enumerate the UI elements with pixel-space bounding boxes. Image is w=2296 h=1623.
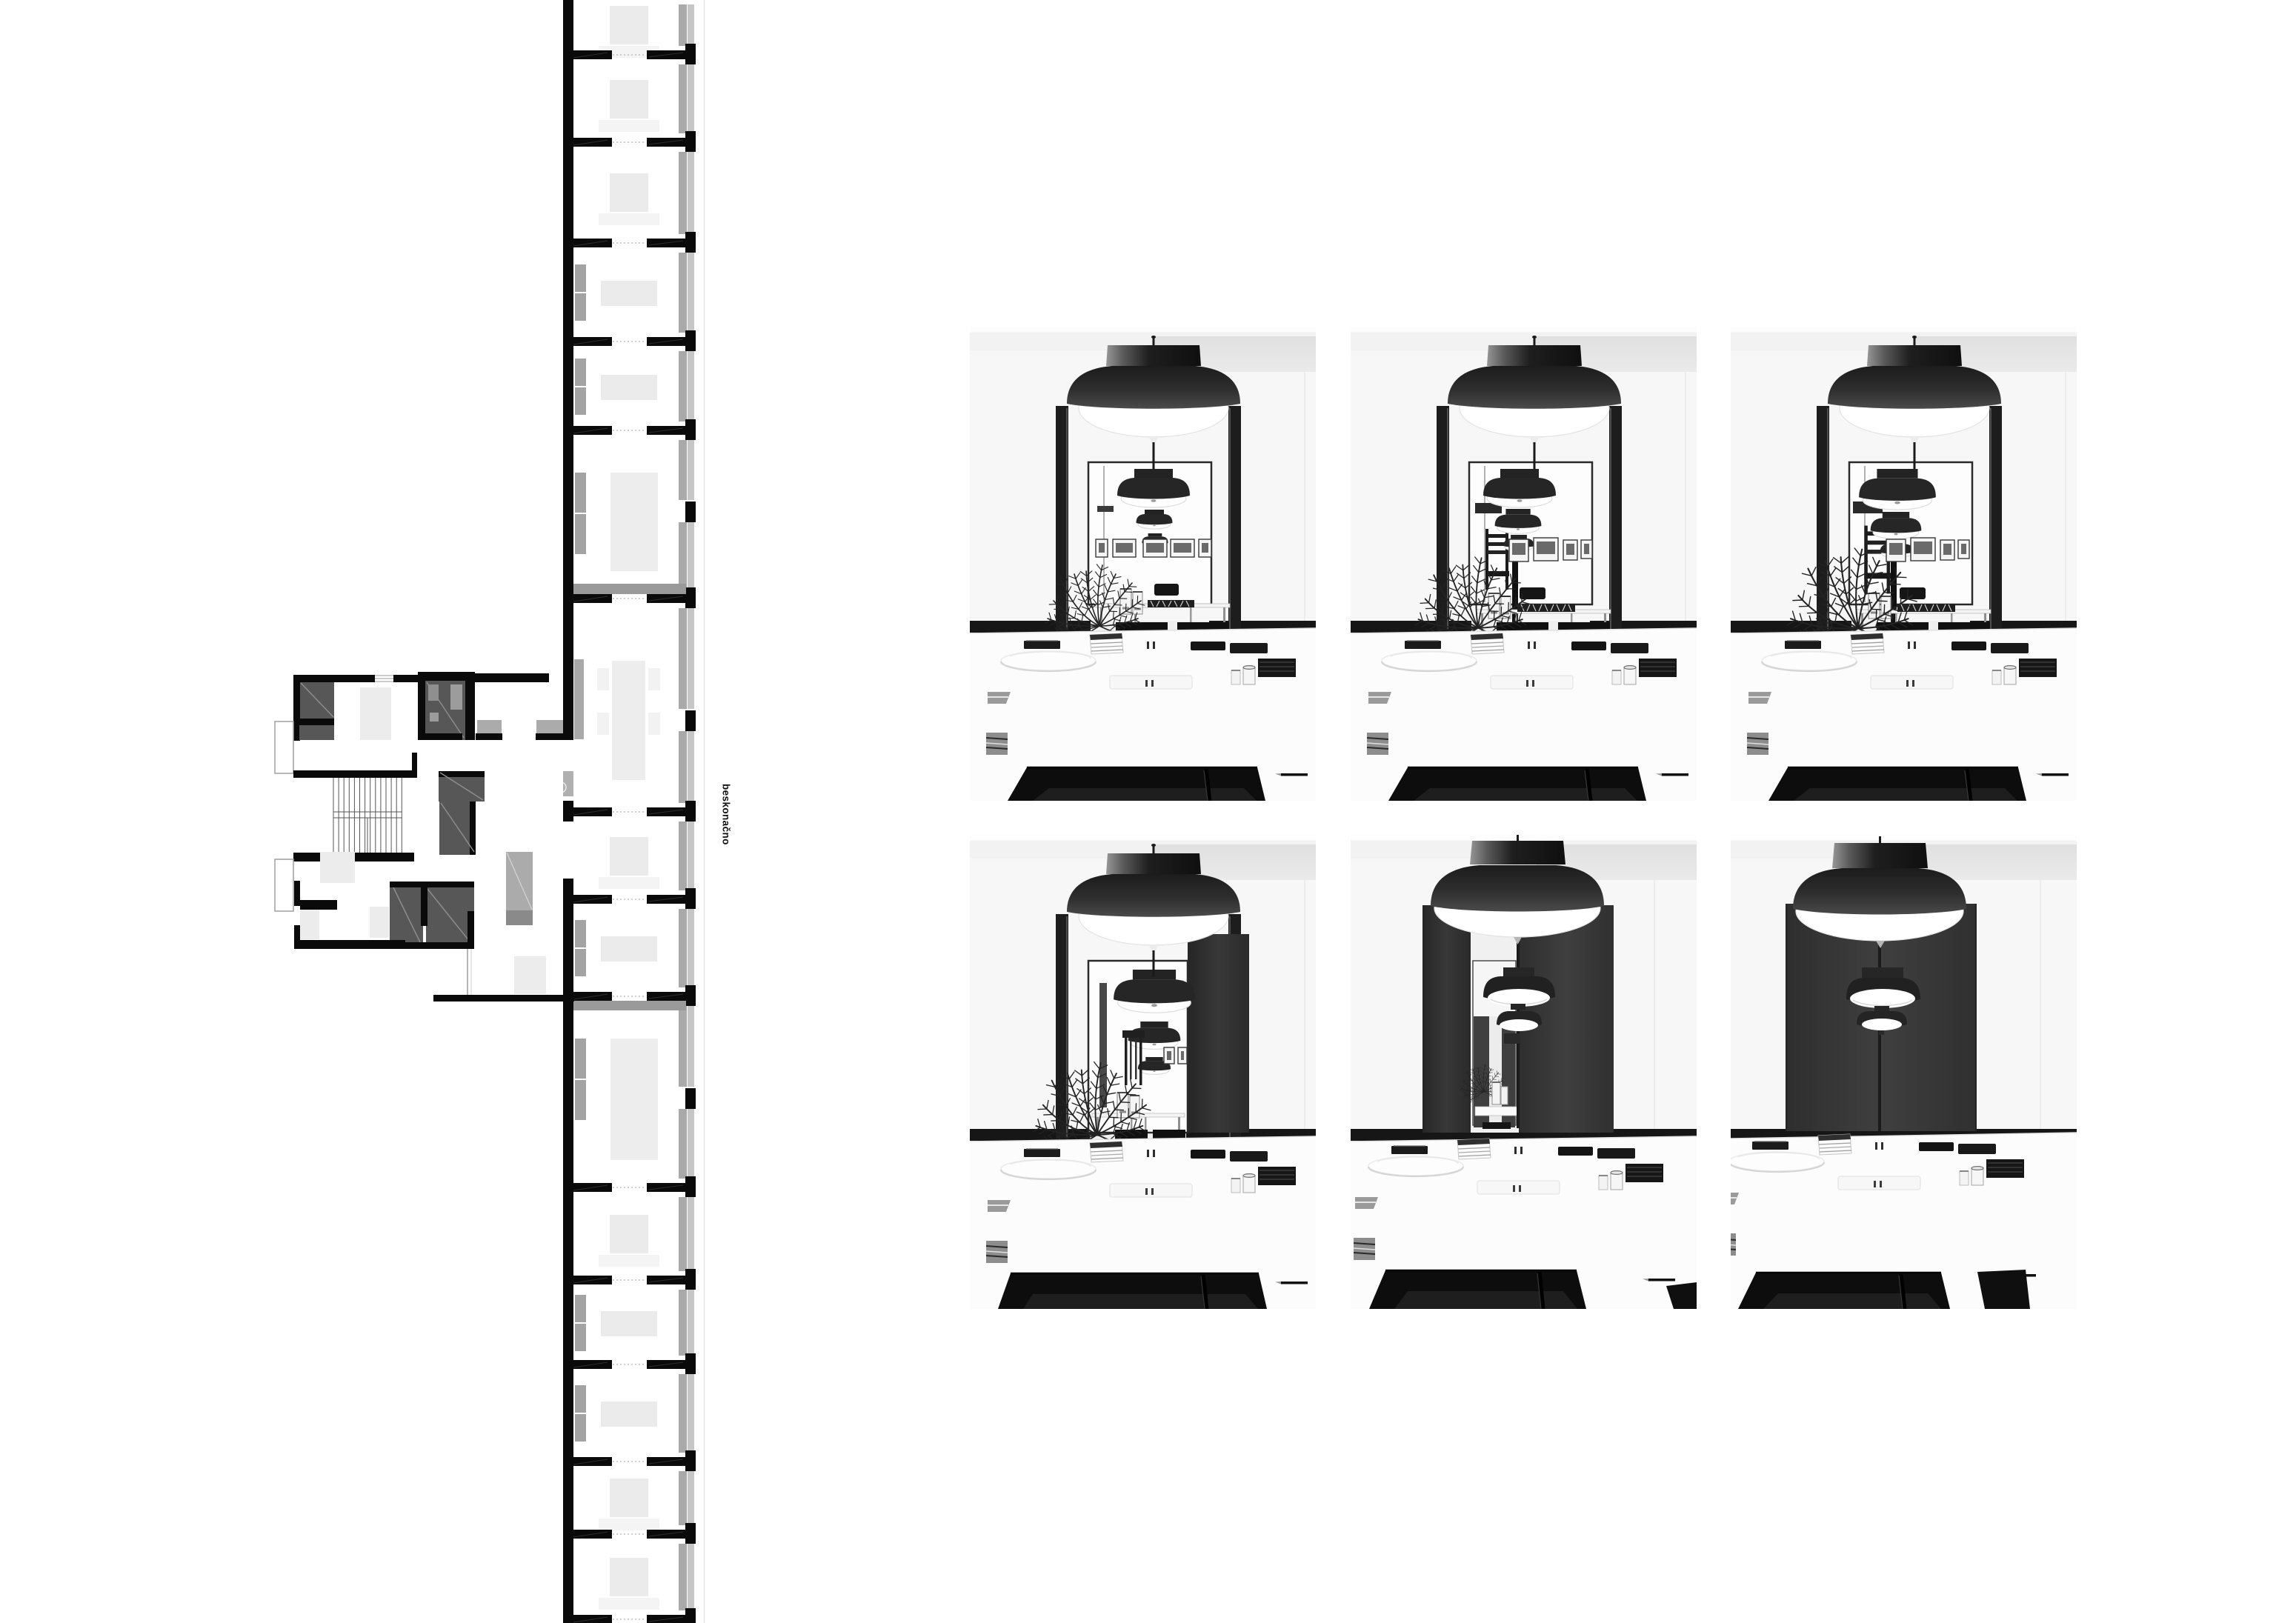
svg-text:beskonačno: beskonačno bbox=[721, 784, 732, 845]
